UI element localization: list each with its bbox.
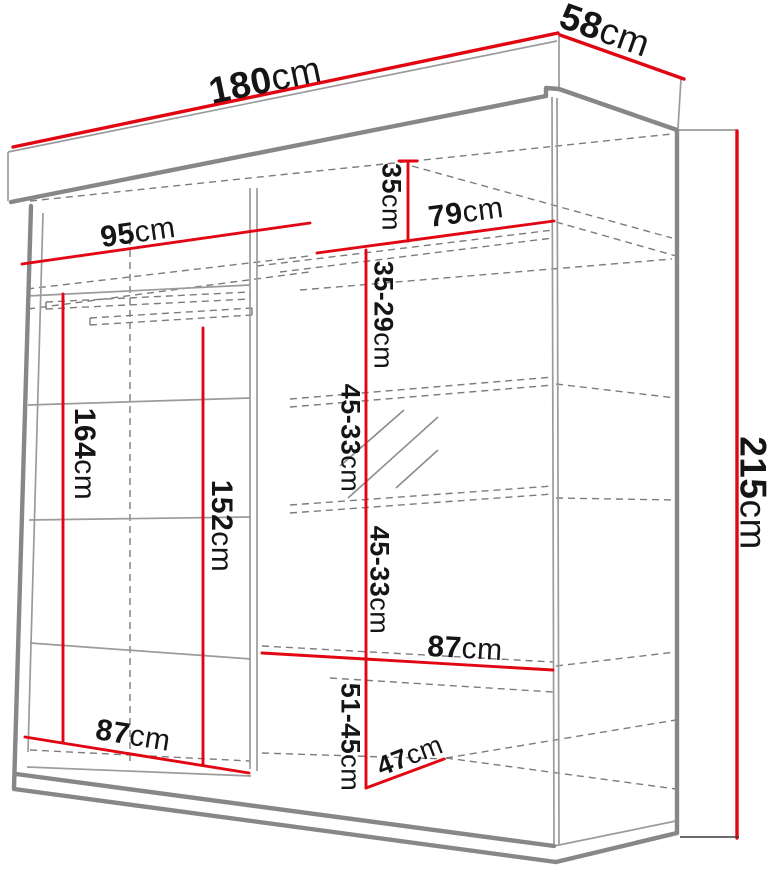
dim-value: 152 <box>205 480 238 532</box>
dim-left-rod-clearance-label: 152cm <box>206 480 236 573</box>
dim-value: 35-29 <box>369 261 399 333</box>
dim-unit: cm <box>733 499 774 549</box>
dim-top-shelf-height-label: 35cm <box>378 163 405 231</box>
dim-unit: cm <box>461 632 504 667</box>
dim-value: 45-33 <box>336 384 366 456</box>
dim-value: 35 <box>377 163 407 194</box>
dim-unit: cm <box>369 332 399 369</box>
dim-left-hanging-height-label: 164cm <box>69 408 99 501</box>
dim-unit: cm <box>336 754 366 791</box>
dim-value: 215 <box>733 436 774 499</box>
dim-middle-shelf-spacing-1-label: 45-33cm <box>337 384 364 493</box>
dim-value: 45-33 <box>365 526 395 598</box>
dim-unit: cm <box>132 211 177 249</box>
dim-unit: cm <box>68 459 101 500</box>
dim-middle-shelf-spacing-2-label: 45-33cm <box>366 526 393 635</box>
dim-unit: cm <box>336 455 366 492</box>
dim-value: 87 <box>426 630 462 665</box>
dim-unit: cm <box>205 531 238 572</box>
dim-value: 87 <box>93 713 132 751</box>
wardrobe-dimension-diagram: 180cm 58cm 215cm 95cm 79cm 35cm 35-29cm … <box>0 0 775 877</box>
dim-value: 51-45 <box>336 683 366 755</box>
dim-unit: cm <box>460 191 505 229</box>
dim-unit: cm <box>377 194 407 231</box>
dim-unit: cm <box>365 597 395 634</box>
dim-unit: cm <box>127 719 173 758</box>
dim-bottom-section-height-label: 51-45cm <box>337 683 364 792</box>
dim-value: 79 <box>426 197 464 234</box>
dim-value: 164 <box>68 408 101 460</box>
dim-overall-height-label: 215cm <box>735 436 772 550</box>
dim-value: 95 <box>98 217 137 255</box>
dim-upper-shelf-spacing-label: 35-29cm <box>370 261 397 370</box>
dim-right-bottom-width-label: 87cm <box>427 632 504 666</box>
